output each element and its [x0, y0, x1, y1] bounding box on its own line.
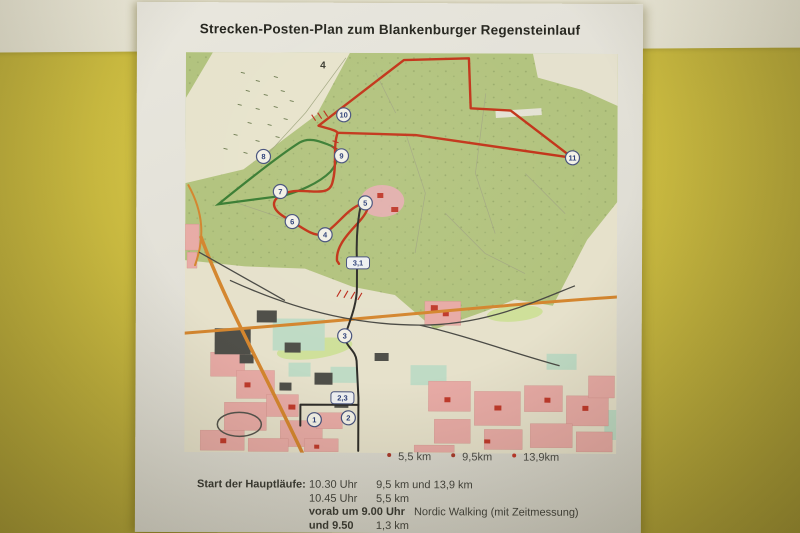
route-map: 410897654113,132,312	[184, 52, 618, 454]
marker-label: 11	[568, 153, 576, 162]
marker-label: 4	[320, 60, 326, 71]
schedule-time: vorab um 9.00 Uhr	[309, 506, 405, 520]
schedule-time: 10.45 Uhr	[309, 492, 373, 506]
photo-scene: Strecken-Posten-Plan zum Blankenburger R…	[0, 0, 800, 533]
schedule-detail: 5,5 km	[376, 492, 409, 504]
marker-label: 1	[312, 415, 316, 424]
poster-title: Strecken-Posten-Plan zum Blankenburger R…	[137, 21, 643, 38]
schedule-heading: Start der Hauptläufe:	[197, 478, 306, 492]
schedule-detail: Nordic Walking (mit Zeitmessung)	[414, 506, 579, 519]
topographic-map: 410897654113,132,312	[184, 52, 618, 454]
marker-label: 3	[343, 331, 347, 340]
distance-legend: 5,5 km 9,5km 13,9km	[387, 451, 579, 464]
legend-label: 9,5km	[462, 451, 492, 463]
schedule-time: und 9.50	[309, 519, 373, 533]
schedule-detail: 9,5 km und 13,9 km	[376, 479, 473, 491]
legend-dot-icon	[451, 453, 455, 457]
marker-label: 3,1	[353, 259, 363, 268]
schedule-row: und 9.50 1,3 km	[309, 519, 639, 533]
legend-item: 13,9km	[512, 452, 559, 464]
legend-label: 5,5 km	[398, 451, 431, 463]
marker-label: 2,3	[337, 393, 347, 402]
schedule-row: vorab um 9.00 Uhr Nordic Walking (mit Ze…	[309, 506, 639, 521]
marker-label: 10	[339, 110, 347, 119]
marker-label: 7	[278, 187, 282, 196]
schedule-row: 10.30 Uhr 9,5 km und 13,9 km	[309, 479, 639, 494]
legend-dot-icon	[512, 454, 516, 458]
poster-paper: Strecken-Posten-Plan zum Blankenburger R…	[135, 2, 643, 533]
marker-label: 8	[261, 152, 265, 161]
legend-label: 13,9km	[523, 452, 559, 464]
legend-dot-icon	[387, 453, 391, 457]
schedule-time: 10.30 Uhr	[309, 479, 373, 493]
marker-label: 5	[363, 199, 367, 208]
marker-label: 2	[346, 414, 350, 423]
schedule-row: 10.45 Uhr 5,5 km	[309, 492, 639, 507]
legend-item: 5,5 km	[387, 451, 431, 463]
schedule-rows: 10.30 Uhr 9,5 km und 13,9 km 10.45 Uhr 5…	[309, 479, 639, 533]
schedule-detail: 1,3 km	[376, 519, 409, 531]
legend-item: 9,5km	[451, 451, 492, 463]
marker-label: 9	[339, 151, 343, 160]
marker-label: 6	[290, 217, 294, 226]
